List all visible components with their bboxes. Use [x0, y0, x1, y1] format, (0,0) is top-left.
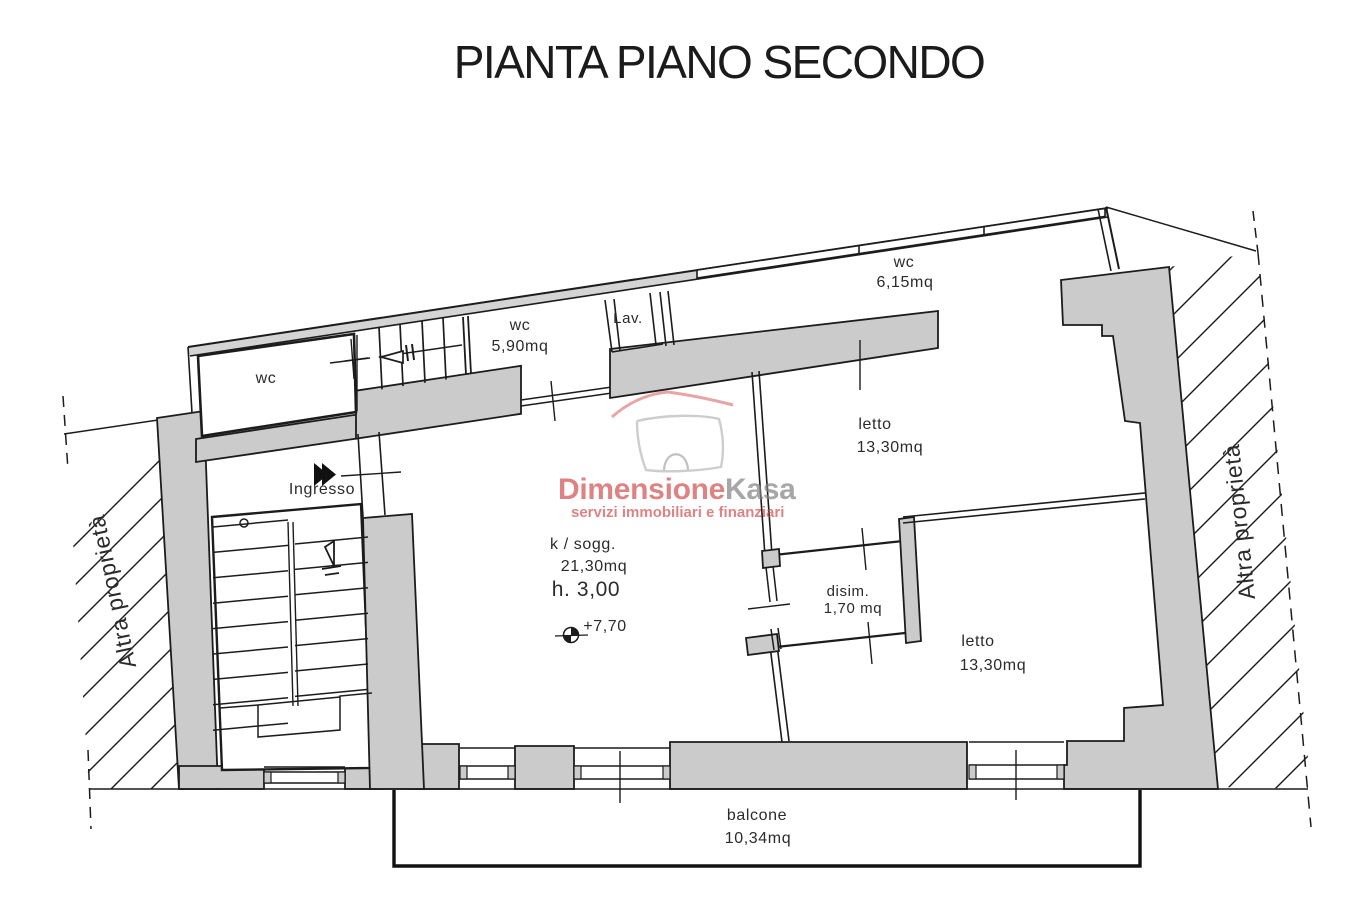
svg-text:servizi immobiliari e finanzia: servizi immobiliari e finanziari — [571, 504, 784, 521]
svg-text:balcone: balcone — [727, 807, 787, 824]
svg-text:5,90mq: 5,90mq — [492, 338, 549, 355]
svg-text:6,15mq: 6,15mq — [877, 274, 934, 291]
svg-text:wc: wc — [509, 317, 531, 334]
svg-text:h. 3,00: h. 3,00 — [552, 578, 620, 601]
svg-text:13,30mq: 13,30mq — [857, 439, 923, 456]
svg-text:+7,70: +7,70 — [583, 618, 626, 635]
svg-text:10,34mq: 10,34mq — [725, 830, 791, 847]
svg-text:wc: wc — [893, 254, 915, 271]
svg-text:letto: letto — [961, 633, 994, 650]
svg-text:13,30mq: 13,30mq — [960, 657, 1026, 674]
svg-text:k / sogg.: k / sogg. — [550, 536, 616, 553]
svg-text:wc: wc — [255, 370, 277, 387]
svg-text:disim.: disim. — [827, 583, 870, 600]
svg-text:21,30mq: 21,30mq — [561, 558, 627, 575]
svg-text:1,70 mq: 1,70 mq — [824, 600, 882, 617]
svg-text:Ingresso: Ingresso — [289, 481, 355, 498]
svg-text:Lav.: Lav. — [613, 310, 643, 327]
svg-text:DimensioneKasa: DimensioneKasa — [558, 473, 796, 506]
svg-text:PIANTA PIANO SECONDO: PIANTA PIANO SECONDO — [454, 36, 984, 88]
svg-text:letto: letto — [858, 416, 891, 433]
